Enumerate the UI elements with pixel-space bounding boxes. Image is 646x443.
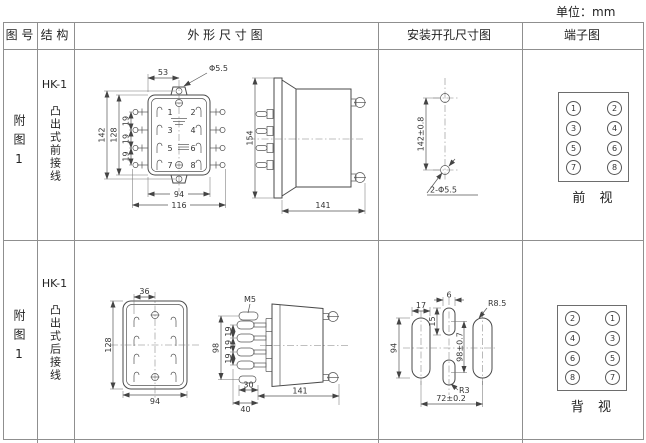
row2-fig-no-cell: 附图1	[3, 239, 36, 438]
row2-structure-cell: HK-1 凸出式后接线	[36, 239, 73, 438]
row1-model: HK-1	[42, 78, 67, 91]
contact-number-4: 4	[190, 126, 195, 135]
dim-label-94: 94	[150, 397, 160, 406]
contact-number-6: 6	[190, 144, 195, 153]
terminal-circle: 2	[607, 101, 622, 116]
row2-fig-no: 附图1	[11, 309, 28, 368]
row2-terminal-box: 2 1 4 3 6 5 8 7	[557, 305, 627, 391]
dim-label-94: 94	[174, 190, 184, 199]
terminal-circle: 5	[605, 351, 620, 366]
dim-label-154: 154	[246, 130, 255, 145]
dim-label-19a: 19	[122, 116, 131, 126]
header-fig-no: 图 号	[3, 22, 36, 48]
table-line	[522, 23, 523, 443]
row1-outline-front-view: 1 2 3 4 5 6 7 8 53 Φ5.5 142 128 19 19 19…	[96, 56, 248, 226]
dim-label-19b: 19	[122, 134, 131, 144]
dim-label-72-tol: 72±0.2	[436, 394, 466, 403]
dim-label-19c: 19	[122, 151, 131, 161]
unit-label: 单位：mm	[556, 3, 615, 20]
row1-view-caption: 前 视	[558, 187, 627, 206]
terminal-circle: 8	[565, 370, 580, 385]
header-terminal: 端子图	[521, 22, 643, 48]
dim-label-53: 53	[158, 68, 168, 77]
contact-number-3: 3	[167, 126, 172, 135]
terminal-circle: 8	[607, 160, 622, 175]
row2-model: HK-1	[42, 277, 67, 290]
dim-label-98-tol: 98±0.7	[456, 332, 465, 362]
dim-label-36: 36	[139, 287, 149, 296]
terminal-circle: 2	[565, 311, 580, 326]
row1-mounting-diagram: 142±0.8 2-Φ5.5	[392, 64, 510, 216]
hole-callout-label: 2-Φ5.5	[430, 186, 457, 195]
contact-number-5: 5	[167, 144, 172, 153]
terminal-circle: 7	[605, 370, 620, 385]
terminal-circle: 3	[605, 331, 620, 346]
dim-label-19a: 19	[224, 326, 233, 336]
contact-number-7: 7	[167, 161, 172, 170]
row1-structure-cell: HK-1 凸出式前接线	[36, 48, 73, 239]
datasheet-page: 单位：mm 图 号 结 构 外 形 尺 寸 图 安装开孔尺寸图 端子图 附图1 …	[0, 0, 646, 443]
row1-outline-side-view: 154 141	[244, 58, 368, 226]
terminal-circle: 3	[566, 121, 581, 136]
dim-label-128: 128	[104, 337, 113, 352]
terminal-circle: 1	[566, 101, 581, 116]
row1-structure: 凸出式前接线	[47, 105, 63, 183]
table-line	[4, 49, 643, 50]
dim-label-128: 128	[110, 127, 119, 142]
terminal-circle: 7	[566, 160, 581, 175]
row1-fig-no-cell: 附图1	[3, 48, 36, 239]
row2-outline-front-view: 36 128 94	[103, 286, 227, 418]
table-line	[4, 240, 643, 241]
dim-label-17: 17	[416, 301, 426, 310]
side-terminal-pins	[256, 110, 273, 170]
contact-number-1: 1	[167, 108, 172, 117]
row2-outline-side-view: M5 98 19 19 19	[210, 272, 386, 440]
header-structure: 结 构	[36, 22, 73, 48]
dim-label-m5: M5	[244, 295, 256, 304]
dim-label-r85: R8.5	[488, 299, 506, 308]
terminal-circle: 4	[565, 331, 580, 346]
dim-label-116: 116	[171, 201, 186, 210]
dim-label-141: 141	[315, 201, 330, 210]
side-mounting-screws	[323, 312, 339, 383]
header-mounting: 安装开孔尺寸图	[377, 22, 521, 48]
dim-label-6: 6	[446, 291, 451, 300]
terminal-circle: 4	[607, 121, 622, 136]
dim-label-19c: 19	[224, 353, 233, 363]
side-mounting-screws	[351, 98, 366, 183]
terminal-circle: 6	[607, 141, 622, 156]
dim-label-142-tol: 142±0.8	[417, 117, 426, 152]
dim-label-98: 98	[212, 343, 221, 353]
dim-label-142: 142	[98, 127, 107, 142]
dim-label-phi55: Φ5.5	[209, 64, 228, 73]
rear-terminal-studs	[237, 319, 272, 372]
row2-mounting-diagram: 17 6 15 94 98±0.7 R8.5 R3 72±0.2	[385, 285, 513, 440]
contact-number-2: 2	[190, 108, 195, 117]
terminal-circle: 6	[565, 351, 580, 366]
row1-terminal-box: 1 2 3 4 5 6 7 8	[558, 92, 629, 182]
table-line	[74, 23, 75, 443]
dim-label-94: 94	[390, 343, 399, 353]
row2-structure: 凸出式后接线	[47, 304, 63, 382]
terminal-circle: 5	[566, 141, 581, 156]
row1-fig-no: 附图1	[11, 114, 28, 173]
header-outline: 外 形 尺 寸 图	[73, 22, 377, 48]
terminal-circle: 1	[605, 311, 620, 326]
dim-label-15: 15	[428, 316, 437, 326]
dim-label-141: 141	[292, 387, 307, 396]
contact-number-8: 8	[190, 161, 195, 170]
dim-label-40: 40	[240, 405, 250, 414]
row2-view-caption: 背 视	[557, 396, 625, 415]
dim-label-30: 30	[243, 381, 253, 390]
dim-label-19b: 19	[224, 340, 233, 350]
top-mounting-stud	[239, 312, 258, 320]
